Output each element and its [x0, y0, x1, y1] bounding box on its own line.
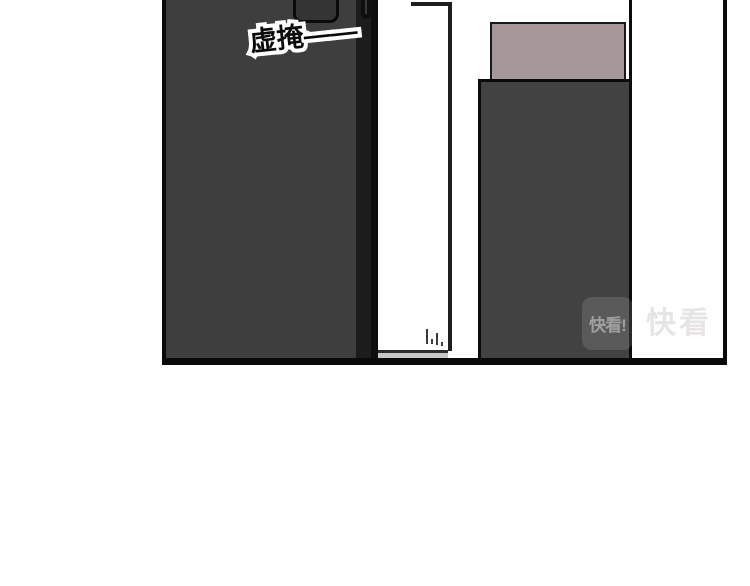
- kuaikan-logo: 快看!: [582, 297, 633, 350]
- sketch-mark: [436, 333, 438, 345]
- panel-border-right: [723, 0, 727, 365]
- door-slot-highlight: [365, 0, 367, 14]
- comic-page: 虚掩—— 虚掩—— 快看! 快看: [0, 0, 750, 586]
- sketch-mark: [431, 339, 433, 344]
- panel-border-bottom: [162, 358, 727, 365]
- kuaikan-logo-text: 快看!: [589, 311, 626, 336]
- door-edge: [371, 0, 378, 358]
- door-frame-side-line: [448, 2, 452, 351]
- door-shade-strip: [356, 0, 371, 358]
- sketch-mark: [426, 329, 428, 344]
- panel-border-left: [162, 0, 166, 365]
- door-frame-top-line: [411, 2, 452, 6]
- sketch-mark: [441, 342, 443, 346]
- cabinet-top-box: [490, 22, 626, 84]
- kuaikan-brand-text: 快看: [646, 298, 712, 342]
